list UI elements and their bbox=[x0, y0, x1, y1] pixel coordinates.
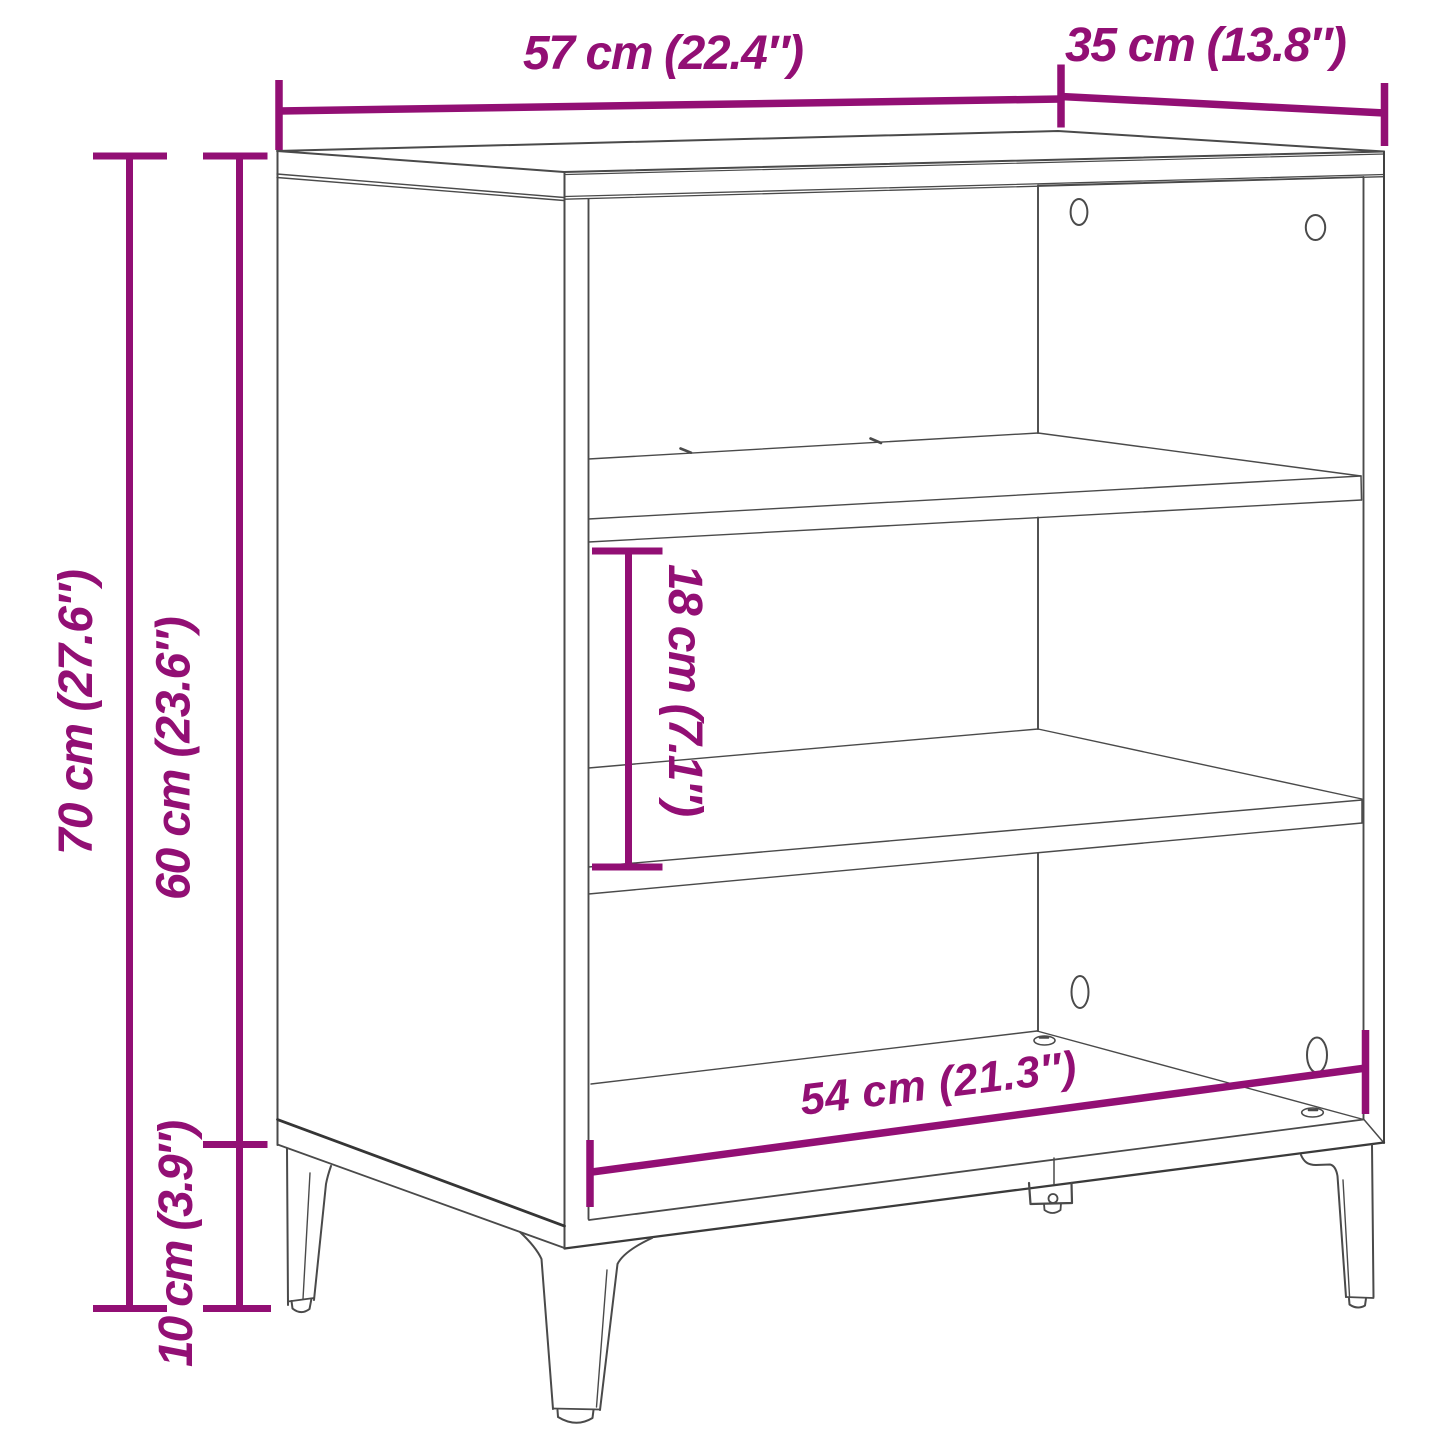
svg-text:35 cm (13.8″): 35 cm (13.8″) bbox=[1065, 19, 1346, 72]
svg-text:10 cm (3.9″): 10 cm (3.9″) bbox=[150, 1121, 203, 1367]
svg-text:57 cm (22.4″): 57 cm (22.4″) bbox=[523, 27, 803, 80]
svg-text:60 cm (23.6″): 60 cm (23.6″) bbox=[148, 617, 201, 900]
svg-text:18 cm (7.1″): 18 cm (7.1″) bbox=[658, 564, 711, 816]
svg-text:70 cm (27.6″): 70 cm (27.6″) bbox=[50, 570, 103, 855]
